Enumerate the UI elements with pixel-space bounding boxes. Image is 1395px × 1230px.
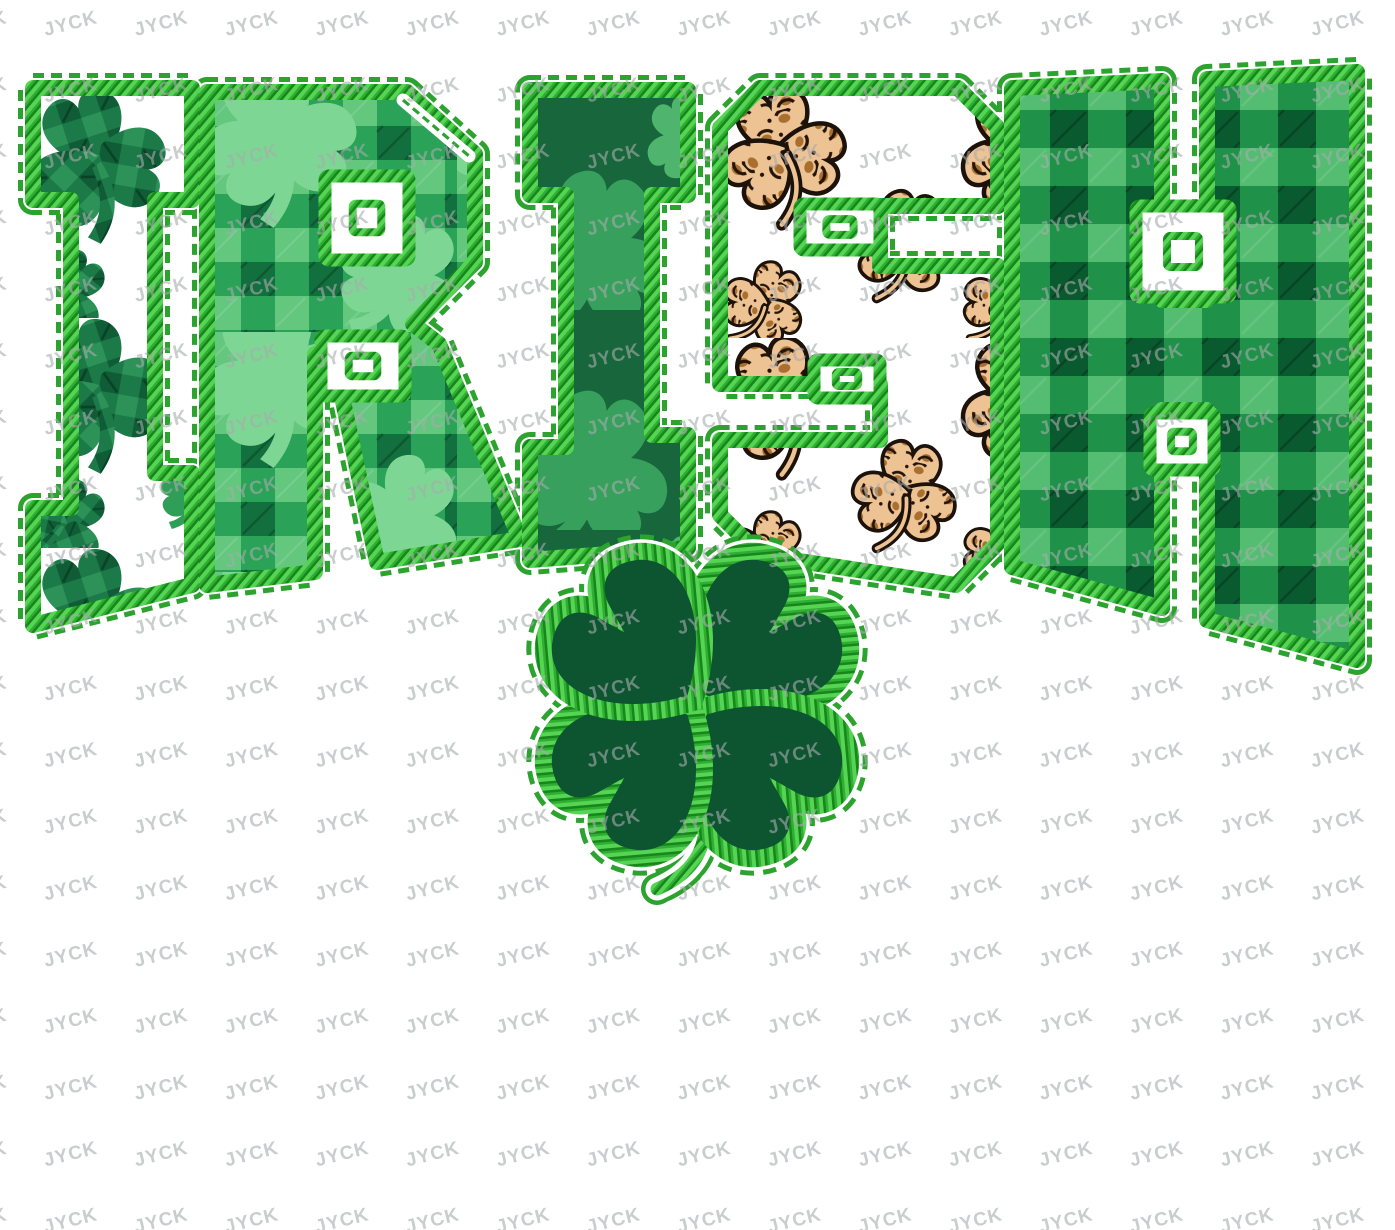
watermark-text: JYCK — [42, 739, 100, 773]
watermark-text: JYCK — [947, 938, 1005, 972]
watermark-text: JYCK — [1128, 1071, 1186, 1105]
watermark-text: JYCK — [675, 938, 733, 972]
watermark-text: JYCK — [42, 672, 100, 706]
watermark-text: JYCK — [585, 1138, 643, 1172]
watermark-text: JYCK — [132, 1204, 190, 1230]
watermark-text: JYCK — [313, 739, 371, 773]
satin-window-inner — [836, 372, 858, 386]
watermark-text: JYCK — [0, 872, 9, 906]
watermark-text: JYCK — [404, 606, 462, 640]
watermark-text: JYCK — [1218, 872, 1276, 906]
watermark-text: JYCK — [1128, 938, 1186, 972]
watermark-text: JYCK — [223, 938, 281, 972]
watermark-text: JYCK — [313, 872, 371, 906]
watermark-text: JYCK — [494, 805, 552, 839]
watermark-text: JYCK — [42, 872, 100, 906]
watermark-text: JYCK — [494, 273, 552, 307]
watermark-text: JYCK — [0, 805, 9, 839]
watermark-text: JYCK — [0, 739, 9, 773]
watermark-text: JYCK — [494, 7, 552, 41]
watermark-text: JYCK — [313, 805, 371, 839]
watermark-text: JYCK — [494, 340, 552, 374]
watermark-text: JYCK — [1309, 739, 1367, 773]
watermark-text: JYCK — [1037, 606, 1095, 640]
watermark-text: JYCK — [947, 739, 1005, 773]
watermark-text: JYCK — [404, 805, 462, 839]
watermark-text: JYCK — [947, 7, 1005, 41]
satin-window-inner — [1171, 432, 1193, 451]
watermark-text: JYCK — [1309, 938, 1367, 972]
watermark-text: JYCK — [313, 1071, 371, 1105]
watermark-text: JYCK — [42, 7, 100, 41]
watermark-text: JYCK — [1128, 672, 1186, 706]
watermark-text: JYCK — [132, 606, 190, 640]
watermark-text: JYCK — [1037, 672, 1095, 706]
watermark-text: JYCK — [404, 1071, 462, 1105]
watermark-text: JYCK — [223, 672, 281, 706]
watermark-text: JYCK — [1128, 739, 1186, 773]
watermark-text: JYCK — [585, 7, 643, 41]
watermark-text: JYCK — [223, 1204, 281, 1230]
watermark-text: JYCK — [1218, 1005, 1276, 1039]
watermark-text: JYCK — [1128, 872, 1186, 906]
watermark-text: JYCK — [856, 1071, 914, 1105]
watermark-text: JYCK — [585, 1005, 643, 1039]
watermark-text: JYCK — [494, 1005, 552, 1039]
watermark-text: JYCK — [313, 1005, 371, 1039]
watermark-text: JYCK — [42, 938, 100, 972]
watermark-text: JYCK — [1309, 1005, 1367, 1039]
watermark-text: JYCK — [1037, 938, 1095, 972]
watermark-text: JYCK — [766, 1005, 824, 1039]
watermark-text: JYCK — [223, 1005, 281, 1039]
watermark-text: JYCK — [675, 1071, 733, 1105]
watermark-text: JYCK — [947, 1138, 1005, 1172]
irish-applique-artwork: IRISH — [0, 0, 1395, 1230]
watermark-text: JYCK — [1037, 1005, 1095, 1039]
watermark-text: JYCK — [0, 1071, 9, 1105]
watermark-text: JYCK — [42, 1204, 100, 1230]
watermark-text: JYCK — [1128, 7, 1186, 41]
watermark-text: JYCK — [1218, 1204, 1276, 1230]
watermark-text: JYCK — [132, 1138, 190, 1172]
watermark-text: JYCK — [494, 1138, 552, 1172]
watermark-text: JYCK — [42, 1071, 100, 1105]
watermark-text: JYCK — [1218, 739, 1276, 773]
watermark-text: JYCK — [585, 1204, 643, 1230]
watermark-text: JYCK — [766, 872, 824, 906]
watermark-text: JYCK — [766, 7, 824, 41]
watermark-text: JYCK — [0, 340, 9, 374]
watermark-text: JYCK — [856, 672, 914, 706]
watermark-text: JYCK — [223, 606, 281, 640]
watermark-text: JYCK — [1309, 672, 1367, 706]
watermark-text: JYCK — [404, 1204, 462, 1230]
watermark-text: JYCK — [0, 938, 9, 972]
watermark-text: JYCK — [42, 1005, 100, 1039]
watermark-text: JYCK — [0, 273, 9, 307]
watermark-text: JYCK — [947, 672, 1005, 706]
watermark-text: JYCK — [947, 805, 1005, 839]
watermark-text: JYCK — [494, 938, 552, 972]
watermark-text: JYCK — [132, 938, 190, 972]
watermark-text: JYCK — [42, 1138, 100, 1172]
watermark-text: JYCK — [1037, 7, 1095, 41]
watermark-text: JYCK — [1309, 7, 1367, 41]
watermark-text: JYCK — [494, 1204, 552, 1230]
watermark-text: JYCK — [1128, 1005, 1186, 1039]
watermark-text: JYCK — [856, 7, 914, 41]
watermark-text: JYCK — [0, 606, 9, 640]
watermark-text: JYCK — [0, 672, 9, 706]
watermark-text: JYCK — [0, 473, 9, 507]
watermark-text: JYCK — [585, 872, 643, 906]
watermark-text: JYCK — [675, 1204, 733, 1230]
watermark-text: JYCK — [947, 872, 1005, 906]
watermark-text: JYCK — [404, 1138, 462, 1172]
watermark-text: JYCK — [856, 1204, 914, 1230]
watermark-text: JYCK — [1037, 805, 1095, 839]
watermark-text: JYCK — [404, 938, 462, 972]
watermark-text: JYCK — [0, 1138, 9, 1172]
watermark-text: JYCK — [313, 606, 371, 640]
watermark-text: JYCK — [404, 672, 462, 706]
watermark-text: JYCK — [132, 672, 190, 706]
four-leaf-clover — [521, 529, 873, 889]
watermark-text: JYCK — [132, 872, 190, 906]
watermark-text: JYCK — [132, 1005, 190, 1039]
watermark-text: JYCK — [947, 606, 1005, 640]
watermark-text: JYCK — [494, 1071, 552, 1105]
watermark-text: JYCK — [766, 938, 824, 972]
watermark-text: JYCK — [675, 1138, 733, 1172]
watermark-text: JYCK — [404, 739, 462, 773]
watermark-text: JYCK — [404, 1005, 462, 1039]
watermark-text: JYCK — [1218, 805, 1276, 839]
watermark-text: JYCK — [675, 7, 733, 41]
watermark-text: JYCK — [1128, 1204, 1186, 1230]
watermark-text: JYCK — [1218, 1138, 1276, 1172]
watermark-text: JYCK — [223, 1071, 281, 1105]
watermark-text: JYCK — [856, 805, 914, 839]
watermark-text: JYCK — [1037, 1071, 1095, 1105]
watermark-text: JYCK — [0, 74, 9, 108]
watermark-text: JYCK — [1037, 1204, 1095, 1230]
watermark-text: JYCK — [0, 207, 9, 241]
watermark-text: JYCK — [223, 7, 281, 41]
watermark-text: JYCK — [1309, 1204, 1367, 1230]
watermark-text: JYCK — [0, 1204, 9, 1230]
watermark-text: JYCK — [1218, 1071, 1276, 1105]
watermark-text: JYCK — [494, 672, 552, 706]
watermark-text: JYCK — [0, 7, 9, 41]
watermark-text: JYCK — [766, 1204, 824, 1230]
watermark-text: JYCK — [1128, 805, 1186, 839]
watermark-text: JYCK — [132, 7, 190, 41]
watermark-text: JYCK — [132, 805, 190, 839]
watermark-text: JYCK — [42, 805, 100, 839]
watermark-text: JYCK — [223, 1138, 281, 1172]
watermark-text: JYCK — [0, 1005, 9, 1039]
watermark-text: JYCK — [856, 606, 914, 640]
watermark-text: JYCK — [947, 1071, 1005, 1105]
watermark-text: JYCK — [856, 872, 914, 906]
watermark-text: JYCK — [494, 207, 552, 241]
watermark-text: JYCK — [404, 7, 462, 41]
watermark-text: JYCK — [0, 140, 9, 174]
watermark-text: JYCK — [856, 1138, 914, 1172]
watermark-text: JYCK — [1128, 1138, 1186, 1172]
watermark-text: JYCK — [856, 1005, 914, 1039]
watermark-text: JYCK — [313, 1204, 371, 1230]
satin-window-inner — [1167, 236, 1199, 267]
embroidery-design-canvas: IRISH — [0, 0, 1395, 1230]
watermark-text: JYCK — [1037, 739, 1095, 773]
watermark-text: JYCK — [1218, 7, 1276, 41]
watermark-text: JYCK — [223, 805, 281, 839]
watermark-text: JYCK — [313, 672, 371, 706]
watermark-text: JYCK — [132, 1071, 190, 1105]
watermark-text: JYCK — [1037, 1138, 1095, 1172]
watermark-text: JYCK — [313, 7, 371, 41]
watermark-text: JYCK — [1218, 938, 1276, 972]
watermark-text: JYCK — [1309, 1138, 1367, 1172]
watermark-text: JYCK — [1037, 872, 1095, 906]
watermark-text: JYCK — [0, 406, 9, 440]
satin-window-inner — [826, 219, 853, 235]
watermark-text: JYCK — [766, 1138, 824, 1172]
watermark-text: JYCK — [947, 1204, 1005, 1230]
watermark-text: JYCK — [585, 1071, 643, 1105]
watermark-text: JYCK — [947, 1005, 1005, 1039]
watermark-text: JYCK — [1309, 1071, 1367, 1105]
watermark-text: JYCK — [1218, 672, 1276, 706]
watermark-text: JYCK — [494, 872, 552, 906]
watermark-text: JYCK — [856, 938, 914, 972]
watermark-text: JYCK — [1309, 805, 1367, 839]
watermark-text: JYCK — [766, 1071, 824, 1105]
watermark-text: JYCK — [223, 739, 281, 773]
watermark-text: JYCK — [675, 1005, 733, 1039]
watermark-text: JYCK — [313, 1138, 371, 1172]
watermark-text: JYCK — [404, 872, 462, 906]
watermark-text: JYCK — [132, 739, 190, 773]
watermark-text: JYCK — [223, 872, 281, 906]
watermark-text: JYCK — [313, 938, 371, 972]
watermark-text: JYCK — [0, 539, 9, 573]
watermark-text: JYCK — [1309, 872, 1367, 906]
watermark-text: JYCK — [585, 938, 643, 972]
